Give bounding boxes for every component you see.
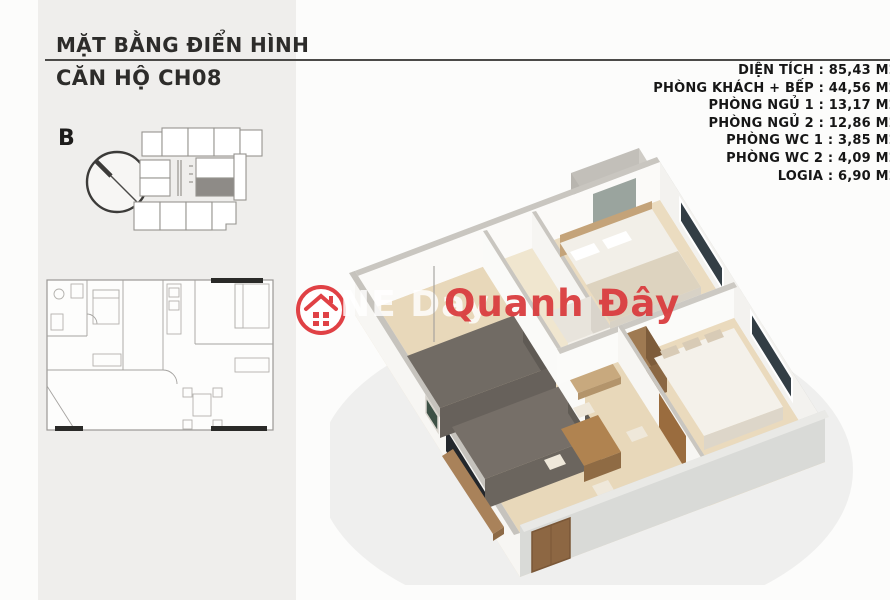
key-plan-unit bbox=[142, 132, 162, 156]
key-plan-unit bbox=[134, 202, 160, 230]
key-plan-unit bbox=[162, 128, 188, 156]
2d-floor-plan-drawing bbox=[35, 274, 287, 439]
key-plan-unit bbox=[214, 128, 240, 156]
flyer-page: MẶT BẰNG ĐIỂN HÌNH CĂN HỘ CH08 DIỆN TÍCH… bbox=[0, 0, 890, 600]
key-plan-unit bbox=[140, 160, 170, 178]
key-plan-unit bbox=[240, 130, 262, 156]
key-plan-unit bbox=[212, 202, 236, 230]
key-plan-unit bbox=[188, 128, 214, 156]
building-key-plan bbox=[128, 122, 273, 234]
spec-living-kitchen: PHÒNG KHÁCH + BẾP : 44,56 M2 bbox=[653, 80, 890, 98]
plan-outer-wall bbox=[47, 280, 273, 430]
3d-apartment-render bbox=[330, 148, 890, 585]
key-plan-unit bbox=[160, 202, 186, 230]
key-plan-highlighted-unit bbox=[196, 178, 234, 196]
compass-north-label: B bbox=[58, 126, 75, 151]
key-plan-unit bbox=[140, 178, 170, 196]
spec-total-area: DIỆN TÍCH : 85,43 M2 bbox=[653, 62, 890, 80]
unit-code-title: CĂN HỘ CH08 bbox=[56, 66, 222, 90]
key-plan-unit bbox=[196, 158, 234, 178]
key-plan-core bbox=[178, 160, 193, 196]
key-plan-unit bbox=[234, 154, 246, 200]
spec-bedroom-1: PHÒNG NGỦ 1 : 13,17 M2 bbox=[653, 97, 890, 115]
page-title: MẶT BẰNG ĐIỂN HÌNH bbox=[56, 33, 309, 57]
watermark-brand-red: Quanh Đây bbox=[444, 282, 680, 325]
spec-bedroom-2: PHÒNG NGỦ 2 : 12,86 M2 bbox=[653, 115, 890, 133]
title-divider-rule bbox=[45, 59, 890, 61]
key-plan-unit bbox=[186, 202, 212, 230]
watermark-divider bbox=[433, 266, 435, 342]
